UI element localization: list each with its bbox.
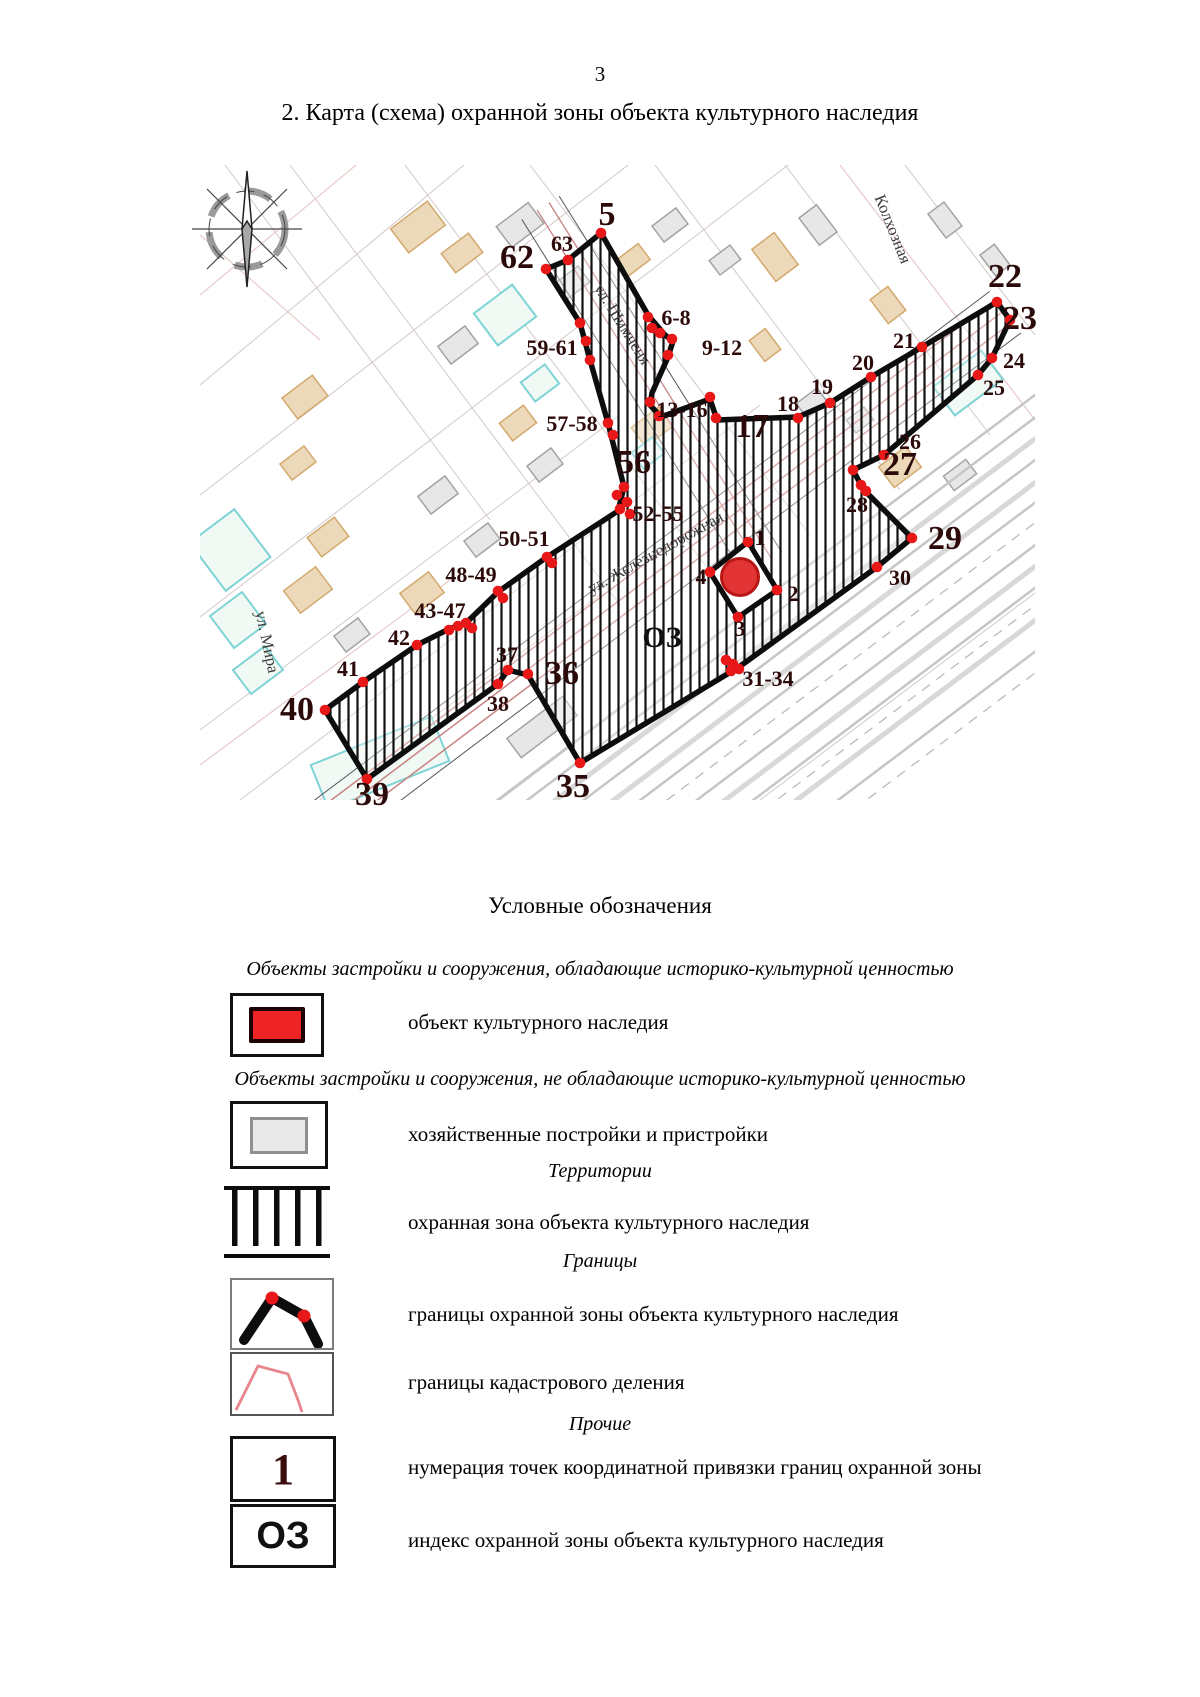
point-number-label: 28: [846, 492, 868, 517]
boundary-point-dot: [358, 677, 369, 688]
point-number-label: 3: [735, 616, 746, 641]
point-number-glyph: 1: [272, 1444, 294, 1495]
point-number-label: 26: [899, 429, 921, 454]
boundary-point-dot: [523, 669, 534, 680]
boundary-point-dot: [467, 623, 478, 634]
point-number-label: 48-49: [445, 562, 496, 587]
point-number-label: 35: [556, 768, 590, 805]
heritage-object-swatch: [249, 1007, 305, 1043]
boundary-point-dot: [645, 397, 656, 408]
legend-symbol-heritage-object: [230, 993, 324, 1057]
boundary-point-dot: [575, 318, 586, 329]
point-number-label: 13-16: [656, 397, 707, 422]
boundary-point-dot: [663, 350, 674, 361]
point-number-label: 19: [811, 374, 833, 399]
boundary-point-dot: [541, 264, 552, 275]
zone-index-map-label: ОЗ: [642, 621, 681, 654]
legend-section-header-boundaries: Границы: [100, 1250, 1100, 1273]
protection-zone-map: ул. Шимченяул. Железнодорожнаяул. МираКо…: [200, 165, 1035, 800]
point-number-label: 62: [500, 239, 534, 276]
point-number-label: 29: [928, 520, 962, 557]
point-number-label: 24: [1003, 348, 1025, 373]
boundary-point-dot: [612, 490, 623, 501]
point-number-label: 20: [852, 350, 874, 375]
boundary-point-dot: [575, 758, 586, 769]
boundary-point-dot: [907, 533, 918, 544]
point-number-label: 31-34: [742, 666, 793, 691]
legend-title: Условные обозначения: [0, 893, 1200, 919]
point-number-label: 63: [551, 231, 573, 256]
boundary-point-dot: [987, 353, 998, 364]
point-number-label: 17: [735, 408, 769, 445]
boundary-point-dot: [711, 413, 722, 424]
legend-label-point-number: нумерация точек координатной привязки гр…: [408, 1455, 982, 1480]
legend-symbol-zone-index: ОЗ: [230, 1504, 336, 1568]
boundary-point-dot: [493, 679, 504, 690]
legend-label-zone-index: индекс охранной зоны объекта культурного…: [408, 1528, 884, 1553]
legend-symbol-cadastral-boundary: [230, 1352, 334, 1416]
boundary-point-dot: [992, 297, 1003, 308]
boundary-point-dot: [581, 336, 592, 347]
zone-index-text: ОЗ: [642, 621, 681, 654]
boundary-point-dot: [498, 593, 509, 604]
point-number-label: 40: [280, 691, 314, 728]
boundary-point-dot: [615, 504, 626, 515]
point-number-label: 57-58: [546, 411, 597, 436]
point-number-label: 2: [788, 581, 799, 606]
point-number-label: 50-51: [498, 526, 549, 551]
boundary-point-dot: [772, 585, 783, 596]
legend-label-zone-boundary: границы охранной зоны объекта культурног…: [408, 1302, 899, 1327]
boundary-point-dot: [743, 537, 754, 548]
boundary-point-dot: [872, 562, 883, 573]
point-number-label: 41: [337, 656, 359, 681]
boundary-point-dot: [608, 430, 619, 441]
boundary-point-dot: [917, 342, 928, 353]
boundary-point-dot: [320, 705, 331, 716]
legend-section-header-other: Прочие: [100, 1413, 1100, 1436]
point-number-label: 30: [889, 565, 911, 590]
legend-section-header-non-heritage: Объекты застройки и сооружения, не облад…: [100, 1068, 1100, 1091]
boundary-point-dot: [603, 418, 614, 429]
legend-symbol-point-number: 1: [230, 1436, 336, 1502]
zone-index-glyph: ОЗ: [256, 1515, 309, 1558]
point-number-label: 59-61: [526, 335, 577, 360]
boundary-point-dot: [848, 465, 859, 476]
page-number: 3: [0, 62, 1200, 87]
point-number-label: 56: [617, 444, 651, 481]
boundary-point-dot: [412, 640, 423, 651]
point-number-label: 37: [496, 642, 518, 667]
point-number-label: 36: [545, 655, 579, 692]
point-number-label: 42: [388, 625, 410, 650]
legend-symbol-zone-boundary: [230, 1278, 334, 1350]
point-number-label: 39: [355, 776, 389, 813]
legend-section-header-territories: Территории: [100, 1160, 1100, 1183]
heritage-object-marker: [722, 559, 759, 596]
point-number-label: 25: [983, 375, 1005, 400]
point-number-label: 52-55: [632, 501, 683, 526]
legend-section-header-heritage: Объекты застройки и сооружения, обладающ…: [100, 958, 1100, 981]
boundary-point-dot: [547, 558, 558, 569]
page-title: 2. Карта (схема) охранной зоны объекта к…: [0, 100, 1200, 127]
legend-symbol-outbuilding: [230, 1101, 328, 1169]
boundary-point-dot: [825, 398, 836, 409]
boundary-point-dot: [563, 255, 574, 266]
point-number-label: 1: [755, 525, 766, 550]
point-number-label: 6-8: [661, 305, 690, 330]
boundary-point-dot: [643, 312, 654, 323]
legend-label-heritage-object: объект культурного наследия: [408, 1010, 668, 1035]
point-number-label: 5: [599, 196, 616, 233]
legend-label-protection-zone: охранная зона объекта культурного наслед…: [408, 1210, 809, 1235]
point-number-label: 22: [988, 258, 1022, 295]
legend-label-outbuilding: хозяйственные постройки и пристройки: [408, 1122, 768, 1147]
boundary-point-dot: [647, 323, 658, 334]
point-number-label: 4: [696, 564, 707, 589]
point-number-label: 23: [1003, 300, 1037, 337]
boundary-point-dot: [667, 334, 678, 345]
point-number-label: 21: [893, 328, 915, 353]
point-number-label: 18: [777, 391, 799, 416]
boundary-point-dot: [619, 482, 630, 493]
boundary-point-dot: [726, 666, 737, 677]
legend-label-cadastral-boundary: границы кадастрового деления: [408, 1370, 685, 1395]
boundary-point-dot: [856, 480, 867, 491]
document-page: 3 2. Карта (схема) охранной зоны объекта…: [0, 0, 1200, 1697]
legend-symbol-protection-zone-hatch: [224, 1186, 330, 1258]
boundary-point-dot: [973, 370, 984, 381]
point-number-label: 9-12: [702, 335, 742, 360]
point-number-label: 43-47: [414, 598, 465, 623]
outbuilding-swatch: [250, 1117, 308, 1154]
point-number-label: 38: [487, 691, 509, 716]
boundary-point-dot: [585, 355, 596, 366]
